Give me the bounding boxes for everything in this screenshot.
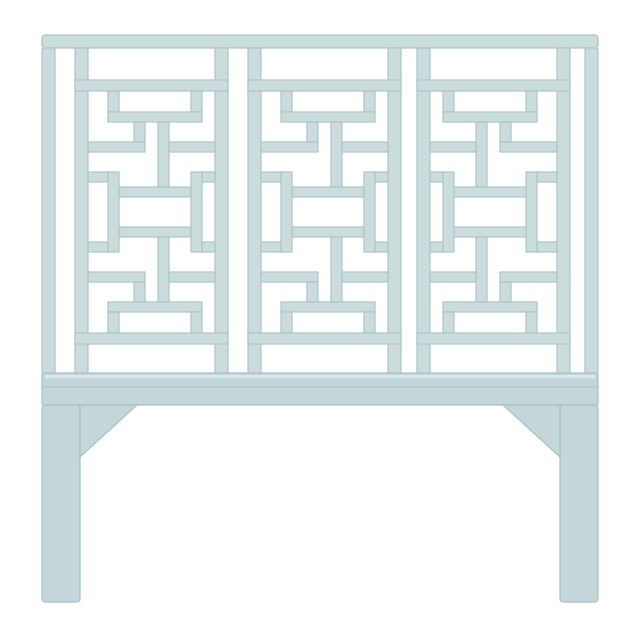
fretwork-panel-right bbox=[417, 48, 570, 373]
fretwork-panel-left bbox=[75, 48, 228, 373]
leg-right bbox=[560, 405, 598, 602]
headboard-lattice-section bbox=[42, 35, 598, 373]
leg-left bbox=[42, 405, 80, 602]
corner-brace-right bbox=[503, 405, 560, 457]
outer-post-right bbox=[585, 48, 598, 373]
rail-seam bbox=[43, 386, 597, 388]
top-rail bbox=[42, 35, 598, 48]
fretwork-panel-center bbox=[248, 48, 401, 373]
headboard-image bbox=[0, 0, 640, 640]
product-photo bbox=[0, 0, 640, 640]
rail-highlight bbox=[45, 375, 595, 378]
corner-brace-left bbox=[80, 405, 137, 457]
outer-post-left bbox=[42, 48, 55, 373]
headboard-base-section bbox=[42, 373, 598, 602]
